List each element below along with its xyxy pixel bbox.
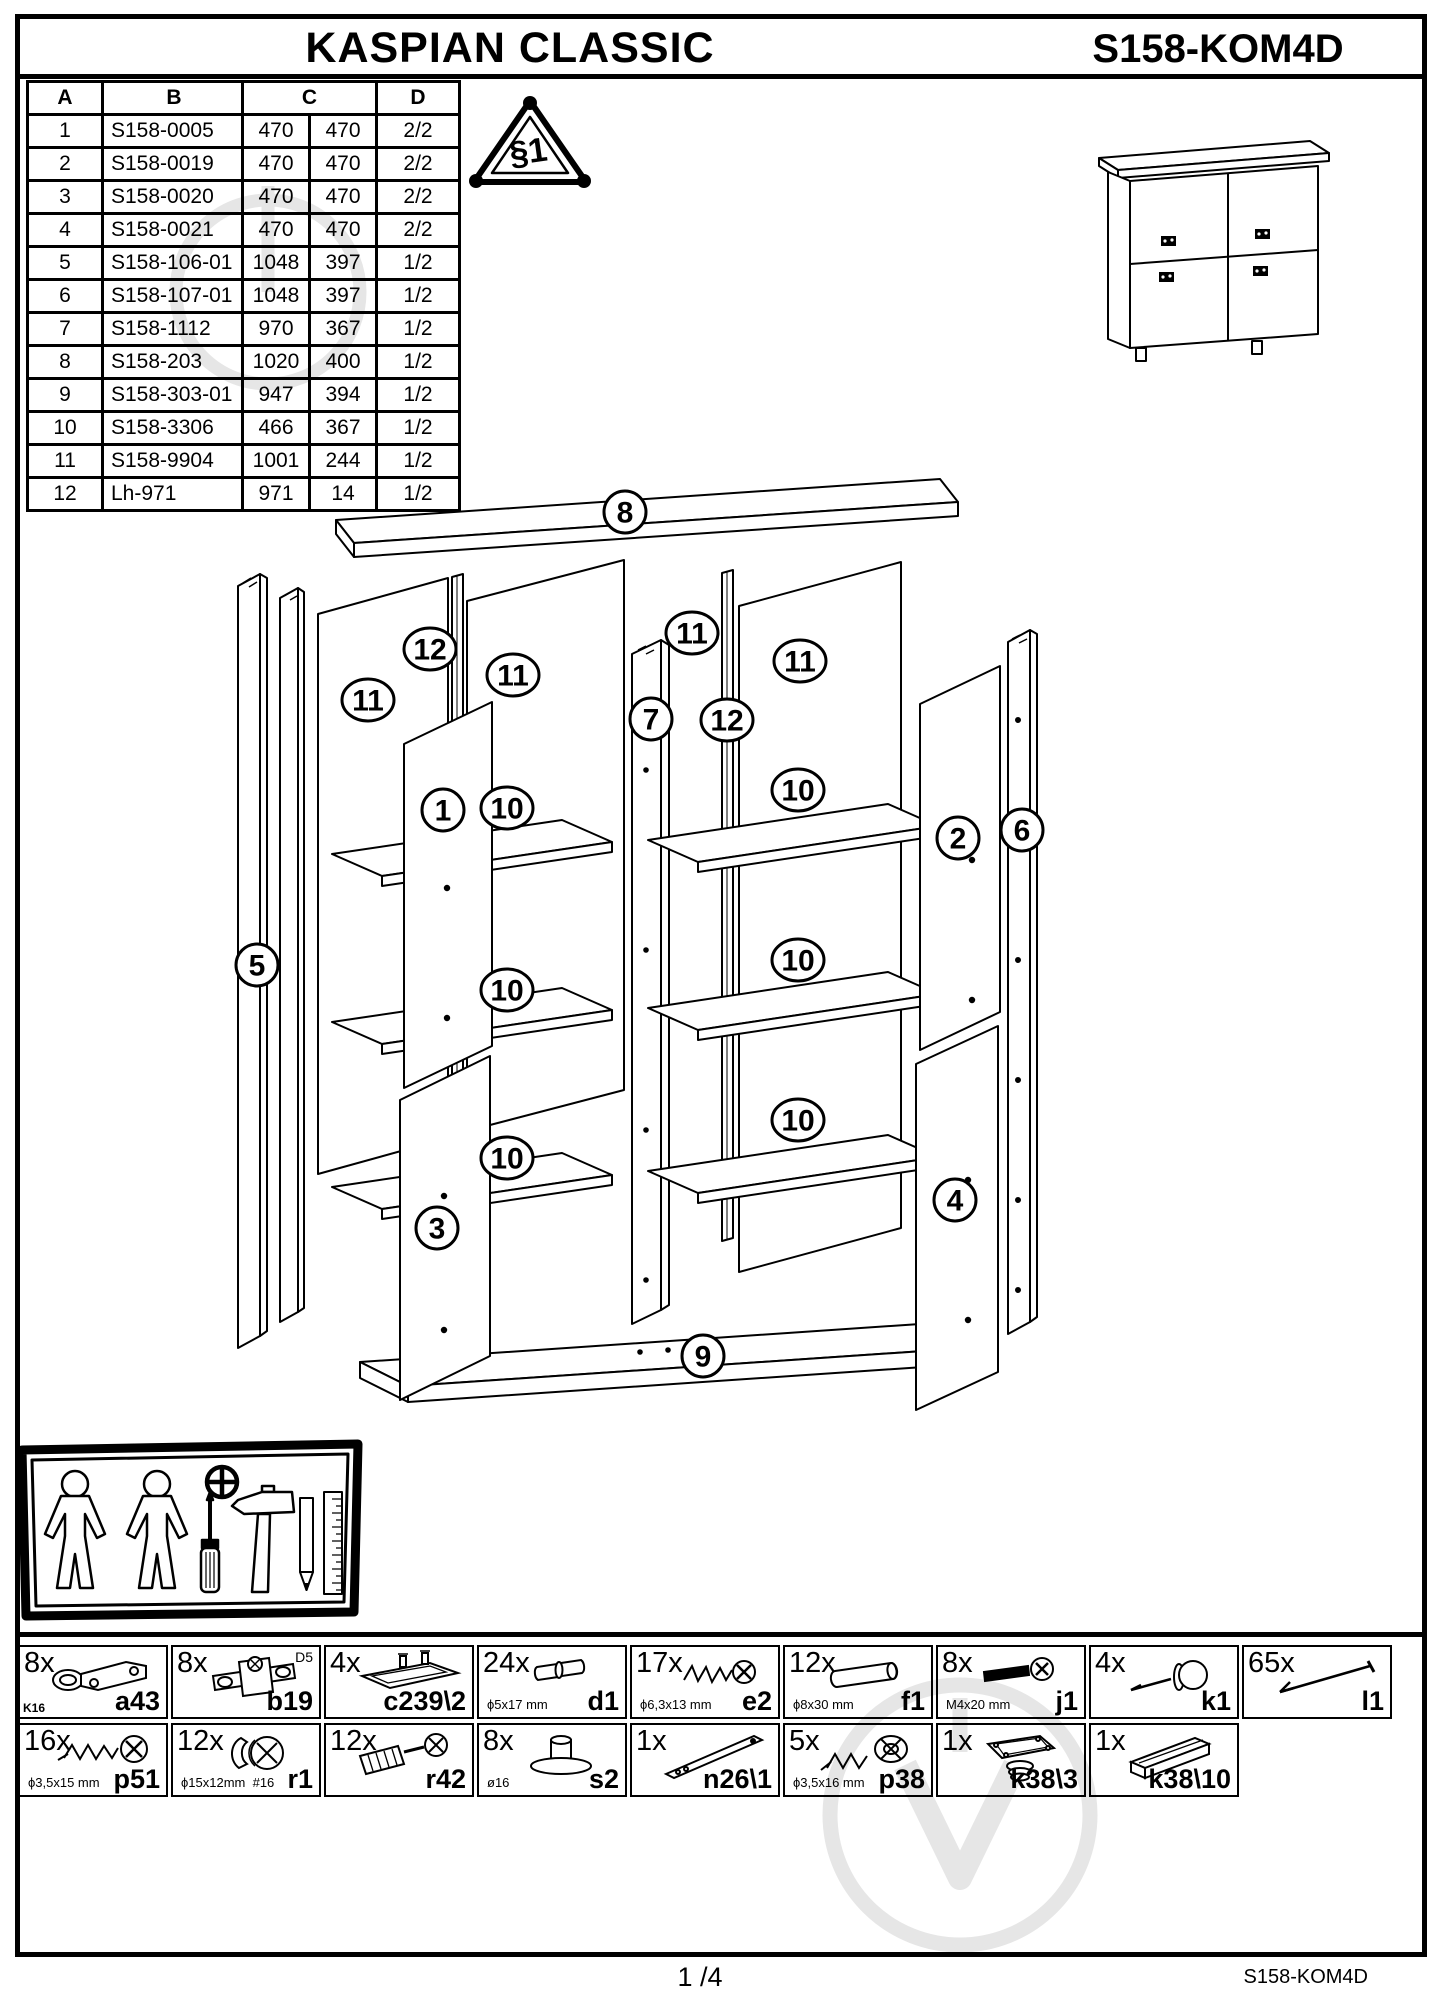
table-cell: S158-3306 xyxy=(103,412,243,445)
table-cell: S158-9904 xyxy=(103,445,243,478)
table-cell: 397 xyxy=(310,280,377,313)
table-cell: 1020 xyxy=(243,346,310,379)
hardware-item-d1: 24x ϕ5x17 mm d1 xyxy=(477,1645,627,1719)
table-cell: 4 xyxy=(28,214,103,247)
hardware-dimension: ϕ15x12mm #16 xyxy=(181,1775,274,1790)
hardware-divider xyxy=(15,1632,1427,1637)
table-row: 6S158-107-0110483971/2 xyxy=(28,280,460,313)
table-cell: 1/2 xyxy=(377,445,460,478)
hardware-code: s2 xyxy=(589,1764,619,1795)
hardware-item-e2: 17x ϕ6,3x13 mm e2 xyxy=(630,1645,780,1719)
table-cell: 2/2 xyxy=(377,148,460,181)
table-row: 5S158-106-0110483971/2 xyxy=(28,247,460,280)
hardware-code: l1 xyxy=(1361,1686,1384,1717)
table-row: 11S158-990410012441/2 xyxy=(28,445,460,478)
hardware-dimension: M4x20 mm xyxy=(946,1697,1010,1712)
hardware-item-l1: 65x l1 xyxy=(1242,1645,1392,1719)
table-cell: 1/2 xyxy=(377,379,460,412)
hardware-dimension: ø16 xyxy=(487,1775,509,1790)
hardware-code: k38\3 xyxy=(1010,1764,1078,1795)
table-cell: 2/2 xyxy=(377,181,460,214)
table-cell: S158-303-01 xyxy=(103,379,243,412)
page-title: KASPIAN CLASSIC xyxy=(285,24,735,73)
hardware-dimension: ϕ3,5x16 mm xyxy=(793,1775,865,1790)
table-cell: S158-0005 xyxy=(103,115,243,148)
col-header-c: C xyxy=(243,82,377,115)
table-cell: 1/2 xyxy=(377,280,460,313)
table-row: 3S158-00204704702/2 xyxy=(28,181,460,214)
table-cell: S158-1112 xyxy=(103,313,243,346)
hardware-dimension: ϕ3,5x15 mm xyxy=(28,1775,100,1790)
table-cell: 470 xyxy=(243,214,310,247)
table-cell: 1/2 xyxy=(377,313,460,346)
hardware-item-a43: 8x K16 a43 xyxy=(18,1645,168,1719)
header-divider xyxy=(15,74,1427,79)
table-cell: S158-0021 xyxy=(103,214,243,247)
table-cell: 970 xyxy=(243,313,310,346)
table-cell: 470 xyxy=(243,115,310,148)
col-header-d: D xyxy=(377,82,460,115)
table-row: 7S158-11129703671/2 xyxy=(28,313,460,346)
footer-model-number: S158-KOM4D xyxy=(1150,1966,1368,1989)
table-cell: S158-0019 xyxy=(103,148,243,181)
hardware-note: D5 xyxy=(295,1649,313,1665)
hardware-item-r42: 12x r42 xyxy=(324,1723,474,1797)
hardware-item-f1: 12x ϕ8x30 mm f1 xyxy=(783,1645,933,1719)
table-cell: 12 xyxy=(28,478,103,511)
parts-table-body: 1S158-00054704702/22S158-00194704702/23S… xyxy=(28,115,460,511)
table-cell: 7 xyxy=(28,313,103,346)
table-cell: 2/2 xyxy=(377,115,460,148)
table-cell: 14 xyxy=(310,478,377,511)
table-row: 1S158-00054704702/2 xyxy=(28,115,460,148)
hardware-code: c239\2 xyxy=(383,1686,466,1717)
hardware-code: d1 xyxy=(587,1686,619,1717)
table-cell: 1001 xyxy=(243,445,310,478)
hardware-code: n26\1 xyxy=(703,1764,772,1795)
table-cell: S158-203 xyxy=(103,346,243,379)
table-cell: 400 xyxy=(310,346,377,379)
hardware-code: f1 xyxy=(901,1686,925,1717)
table-cell: 367 xyxy=(310,412,377,445)
table-cell: Lh-971 xyxy=(103,478,243,511)
hardware-item-b19: 8x D5 b19 xyxy=(171,1645,321,1719)
table-cell: 1048 xyxy=(243,247,310,280)
table-cell: 470 xyxy=(310,148,377,181)
table-cell: S158-107-01 xyxy=(103,280,243,313)
table-cell: 244 xyxy=(310,445,377,478)
table-cell: 1/2 xyxy=(377,346,460,379)
col-header-b: B xyxy=(103,82,243,115)
hardware-code: p51 xyxy=(113,1764,160,1795)
hardware-item-k38-3: 1x k38\3 xyxy=(936,1723,1086,1797)
table-cell: 466 xyxy=(243,412,310,445)
parts-table: A B C D 1S158-00054704702/22S158-0019470… xyxy=(26,80,461,512)
table-cell: 1/2 xyxy=(377,478,460,511)
table-cell: 1/2 xyxy=(377,247,460,280)
hardware-code: b19 xyxy=(266,1686,313,1717)
hardware-code: k38\10 xyxy=(1148,1764,1231,1795)
table-cell: 6 xyxy=(28,280,103,313)
table-cell: 3 xyxy=(28,181,103,214)
hardware-code: e2 xyxy=(742,1686,772,1717)
hardware-code: j1 xyxy=(1055,1686,1078,1717)
table-cell: 1 xyxy=(28,115,103,148)
table-cell: 470 xyxy=(243,148,310,181)
parts-table-header: A B C D xyxy=(28,82,460,115)
table-row: 4S158-00214704702/2 xyxy=(28,214,460,247)
table-cell: 5 xyxy=(28,247,103,280)
table-cell: 1/2 xyxy=(377,412,460,445)
table-cell: 470 xyxy=(310,115,377,148)
table-row: 12Lh-971971141/2 xyxy=(28,478,460,511)
hardware-code: r1 xyxy=(287,1764,313,1795)
hardware-dimension: ϕ5x17 mm xyxy=(487,1697,548,1712)
hardware-code: r42 xyxy=(425,1764,466,1795)
table-cell: 394 xyxy=(310,379,377,412)
hardware-item-n26-1: 1x n26\1 xyxy=(630,1723,780,1797)
table-cell: S158-0020 xyxy=(103,181,243,214)
hardware-item-p51: 16x ϕ3,5x15 mm p51 xyxy=(18,1723,168,1797)
hardware-dimension: ϕ8x30 mm xyxy=(793,1697,854,1712)
hardware-dimension: ϕ6,3x13 mm xyxy=(640,1697,712,1712)
hardware-item-k38-10: 1x k38\10 xyxy=(1089,1723,1239,1797)
table-cell: 1048 xyxy=(243,280,310,313)
hardware-code: a43 xyxy=(115,1686,160,1717)
table-cell: 470 xyxy=(243,181,310,214)
hardware-note: K16 xyxy=(23,1701,45,1715)
hardware-code: p38 xyxy=(878,1764,925,1795)
table-cell: 2/2 xyxy=(377,214,460,247)
hardware-item-r1: 12x ϕ15x12mm #16 r1 xyxy=(171,1723,321,1797)
table-cell: 11 xyxy=(28,445,103,478)
table-cell: S158-106-01 xyxy=(103,247,243,280)
hardware-item-c239-2: 4x c239\2 xyxy=(324,1645,474,1719)
table-row: 2S158-00194704702/2 xyxy=(28,148,460,181)
table-row: 9S158-303-019473941/2 xyxy=(28,379,460,412)
hardware-item-k1: 4x k1 xyxy=(1089,1645,1239,1719)
col-header-a: A xyxy=(28,82,103,115)
table-cell: 470 xyxy=(310,181,377,214)
table-cell: 470 xyxy=(310,214,377,247)
table-cell: 947 xyxy=(243,379,310,412)
page-number: 1 /4 xyxy=(600,1962,800,1993)
model-number: S158-KOM4D xyxy=(1073,27,1363,72)
table-cell: 8 xyxy=(28,346,103,379)
table-row: 8S158-20310204001/2 xyxy=(28,346,460,379)
table-cell: 9 xyxy=(28,379,103,412)
table-cell: 971 xyxy=(243,478,310,511)
table-cell: 397 xyxy=(310,247,377,280)
hardware-code: k1 xyxy=(1201,1686,1231,1717)
hardware-item-s2: 8x ø16 s2 xyxy=(477,1723,627,1797)
hardware-item-p38: 5x ϕ3,5x16 mm p38 xyxy=(783,1723,933,1797)
table-row: 10S158-33064663671/2 xyxy=(28,412,460,445)
table-cell: 10 xyxy=(28,412,103,445)
table-cell: 2 xyxy=(28,148,103,181)
hardware-item-j1: 8x M4x20 mm j1 xyxy=(936,1645,1086,1719)
table-cell: 367 xyxy=(310,313,377,346)
